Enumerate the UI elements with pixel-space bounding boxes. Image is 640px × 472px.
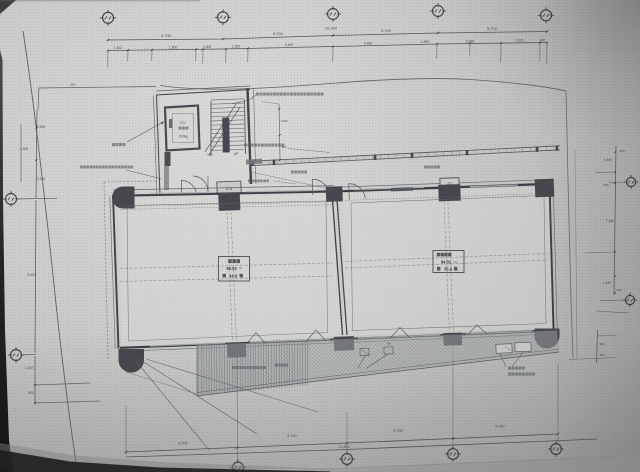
svg-text:22,900: 22,900 (325, 26, 338, 31)
svg-text:35.4: 35.4 (444, 267, 453, 272)
svg-text:5,700: 5,700 (487, 26, 498, 31)
svg-text:1,510: 1,510 (114, 46, 123, 50)
svg-text:5,700: 5,700 (178, 442, 187, 446)
svg-text:250: 250 (71, 83, 76, 87)
svg-text:900: 900 (600, 342, 605, 346)
svg-text:300: 300 (619, 149, 624, 153)
svg-text:m²: m² (239, 266, 242, 270)
svg-text:m²: m² (453, 260, 456, 264)
svg-text:7,280: 7,280 (606, 219, 614, 223)
svg-text:2,100: 2,100 (515, 39, 524, 43)
svg-text:1,400: 1,400 (604, 158, 612, 162)
svg-text:1,400: 1,400 (25, 366, 33, 370)
svg-text:EV: EV (180, 120, 186, 125)
svg-text:5,700: 5,700 (273, 31, 284, 36)
svg-text:1,450: 1,450 (20, 147, 28, 151)
svg-text:5,085: 5,085 (466, 39, 475, 43)
svg-text:900: 900 (387, 342, 392, 346)
svg-text:34.8: 34.8 (229, 274, 238, 279)
svg-text:800: 800 (282, 145, 287, 149)
svg-text:21,800: 21,800 (339, 445, 350, 449)
svg-text:400: 400 (540, 38, 546, 42)
svg-text:99.93: 99.93 (226, 266, 237, 271)
svg-text:4,460: 4,460 (285, 43, 294, 47)
svg-text:500: 500 (603, 183, 608, 187)
svg-text:2,300: 2,300 (37, 125, 45, 129)
svg-text:6,700: 6,700 (161, 33, 172, 38)
svg-text:400: 400 (617, 288, 622, 292)
svg-text:1,850: 1,850 (169, 45, 178, 49)
svg-text:2,150: 2,150 (37, 177, 45, 181)
svg-text:5,700: 5,700 (495, 425, 504, 429)
svg-text:5,700: 5,700 (287, 434, 296, 438)
svg-text:1,440: 1,440 (603, 281, 611, 285)
svg-text:5,700: 5,700 (381, 28, 392, 33)
svg-text:1,200: 1,200 (280, 119, 288, 123)
svg-text:1,500: 1,500 (203, 45, 212, 49)
svg-text:5,700: 5,700 (393, 429, 402, 433)
svg-text:5,400: 5,400 (27, 273, 35, 277)
svg-text:1,890: 1,890 (421, 40, 430, 44)
svg-text:800: 800 (28, 391, 34, 395)
svg-text:900kg: 900kg (179, 135, 188, 139)
svg-text:600: 600 (600, 353, 605, 357)
svg-text:UP: UP (234, 152, 239, 156)
svg-text:DN: DN (208, 153, 213, 157)
svg-text:1,600: 1,600 (232, 44, 241, 48)
svg-text:5,480: 5,480 (364, 41, 373, 45)
